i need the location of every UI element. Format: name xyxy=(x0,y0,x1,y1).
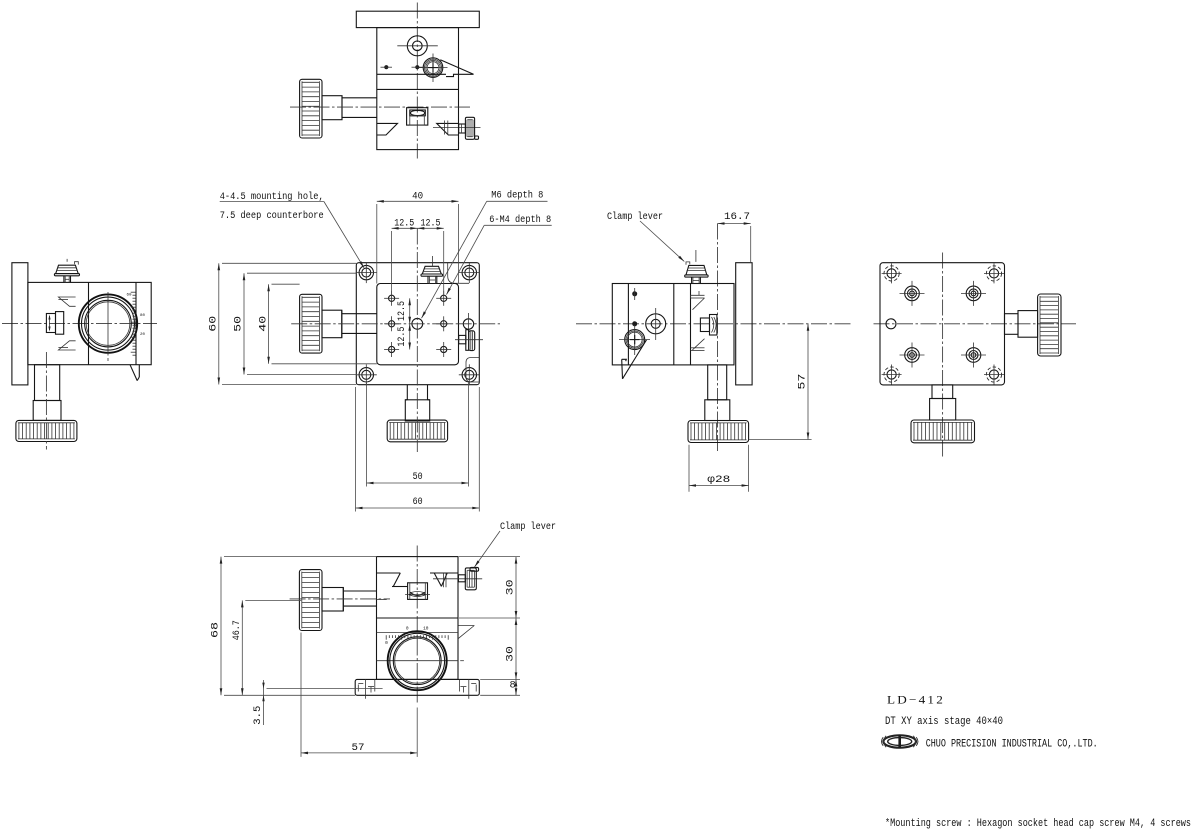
svg-text:68: 68 xyxy=(210,622,222,638)
svg-text:57: 57 xyxy=(797,374,809,390)
svg-text:7.5 deep counterbore: 7.5 deep counterbore xyxy=(220,210,324,222)
svg-text:Clamp lever: Clamp lever xyxy=(500,521,556,533)
svg-text:12.5: 12.5 xyxy=(421,218,441,230)
svg-text:0: 0 xyxy=(406,626,409,632)
svg-text:DT XY axis stage 40×40: DT XY axis stage 40×40 xyxy=(885,716,1003,728)
svg-text:CHUO PRECISION INDUSTRIAL CO,.: CHUO PRECISION INDUSTRIAL CO,.LTD. xyxy=(926,738,1098,750)
svg-text:0: 0 xyxy=(385,640,388,646)
svg-text:Clamp lever: Clamp lever xyxy=(607,211,663,223)
svg-text:6-M4 depth 8: 6-M4 depth 8 xyxy=(489,214,551,226)
svg-text:4-4.5 mounting hole,: 4-4.5 mounting hole, xyxy=(220,191,324,203)
svg-text:*Mounting screw : Hexagon sock: *Mounting screw : Hexagon socket head ca… xyxy=(885,818,1191,829)
svg-text:60: 60 xyxy=(413,496,423,508)
svg-text:80: 80 xyxy=(140,314,146,318)
svg-text:12.5: 12.5 xyxy=(394,218,414,230)
svg-text:12.5: 12.5 xyxy=(396,301,408,321)
svg-text:50: 50 xyxy=(413,471,423,483)
svg-text:20: 20 xyxy=(140,333,146,337)
svg-text:30: 30 xyxy=(505,646,517,662)
svg-text:50: 50 xyxy=(233,316,245,332)
svg-text:M6 depth 8: M6 depth 8 xyxy=(491,190,543,202)
svg-text:57: 57 xyxy=(352,742,365,754)
svg-text:8: 8 xyxy=(510,679,516,691)
svg-text:60: 60 xyxy=(127,293,133,297)
svg-text:φ28: φ28 xyxy=(707,474,730,486)
svg-text:16.7: 16.7 xyxy=(724,211,750,223)
svg-text:3.5: 3.5 xyxy=(252,706,264,725)
svg-text:46.7: 46.7 xyxy=(231,620,243,640)
svg-text:60: 60 xyxy=(208,316,220,332)
svg-text:40: 40 xyxy=(412,191,423,203)
svg-text:40: 40 xyxy=(257,316,269,332)
svg-text:12.5: 12.5 xyxy=(396,327,408,347)
svg-text:30: 30 xyxy=(505,579,517,595)
svg-text:LD−412: LD−412 xyxy=(887,693,945,707)
svg-text:10: 10 xyxy=(423,626,429,632)
